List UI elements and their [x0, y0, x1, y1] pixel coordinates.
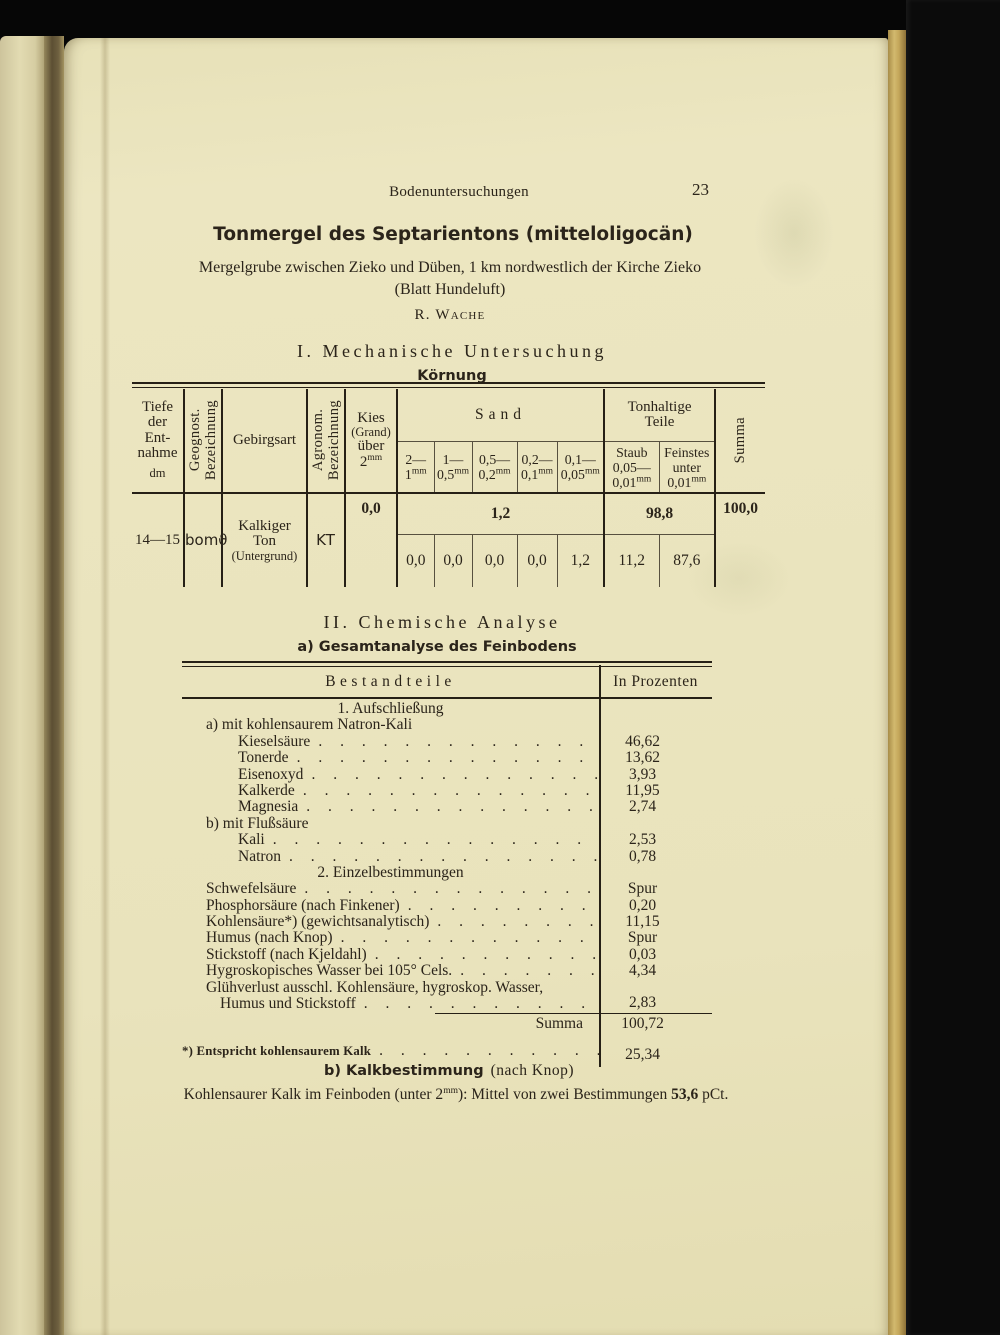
chem-row: Tonerde. . . . . . . . . . . . . . . . .… [182, 750, 712, 766]
dot-leader: . . . . . . . . . . . . . . . . . . . . … [310, 734, 599, 750]
section1-heading: I. Mechanische Untersuchung [64, 341, 840, 362]
header-line: nahme [132, 446, 183, 462]
vertical-label: Agronom. [311, 400, 326, 480]
chem-row: 2. Einzelbestimmungen [182, 865, 712, 881]
header-line: Tonhaltige [605, 400, 714, 416]
chem-value: Spur [599, 930, 712, 946]
dot-leader: . . . . . . . . . . . . . . . . . . . . … [400, 898, 599, 914]
col-header-tiefe: Tiefe der Ent- nahme dm [132, 389, 184, 493]
column-divider [599, 665, 601, 1067]
chem-row: Hygroskopisches Wasser bei 105° Cels.. .… [182, 963, 712, 979]
col-header-sand-2-1: 2— 1mm [397, 442, 434, 494]
chem-row: Summa100,72 [182, 1014, 712, 1036]
cell-sand-value: 0,0 [434, 535, 472, 588]
vertical-label: Geognost. [188, 400, 203, 480]
chem-label: *) Entspricht kohlensaurem Kalk [182, 1043, 371, 1059]
chem-label: Kieselsäure [238, 734, 310, 750]
page-fore-edge [888, 30, 906, 1335]
chem-row: Stickstoff (nach Kjeldahl). . . . . . . … [182, 947, 712, 963]
subtitle-line1: Mergelgrube zwischen Zieko und Düben, 1 … [64, 259, 836, 277]
section-b-heading: b) Kalkbestimmung(nach Knop) [64, 1062, 834, 1080]
chem-value: 100,72 [599, 1016, 712, 1032]
header-line: Ent- [132, 431, 183, 447]
chem-row: Eisenoxyd. . . . . . . . . . . . . . . .… [182, 767, 712, 783]
book-page: Bodenuntersuchungen 23 Tonmergel des Sep… [64, 38, 888, 1335]
chem-value [599, 816, 712, 832]
col-group-tonhaltige: Tonhaltige Teile [604, 389, 715, 442]
chem-value: Spur [599, 881, 712, 897]
subtitle-line2: (Blatt Hundeluft) [64, 281, 836, 299]
table-row: 14—15 bomϑ Kalkiger Ton (Untergrund) KT … [132, 493, 765, 535]
chem-row: b) mit Flußsäure [182, 816, 712, 832]
dot-leader: . . . . . . . . . . . . . . . . . . . . … [296, 881, 599, 897]
dot-leader: . . . . . . . . . . . . . . . . . . . . … [367, 947, 599, 963]
header-line: der [132, 415, 183, 431]
col-header-gebirgsart: Gebirgsart [222, 389, 307, 493]
chem-label: Eisenoxyd [238, 767, 303, 783]
chem-row: Glühverlust ausschl. Kohlensäure, hygros… [182, 980, 712, 1013]
dot-leader: . . . . . . . . . . . . . . . . . . . . … [303, 767, 599, 783]
col-header-kies: Kies (Grand) über 2mm [345, 389, 397, 493]
section2-heading: II. Chemische Analyse [64, 612, 820, 633]
kalk-text: Kohlensaurer Kalk im Feinboden (unter 2 [184, 1086, 444, 1103]
dot-leader: . . . . . . . . . . . . . . . . . . . . … [452, 963, 599, 979]
cell-sand-total: 1,2 [397, 493, 604, 535]
chem-row: Magnesia. . . . . . . . . . . . . . . . … [182, 799, 712, 815]
header-unit: dm [132, 466, 183, 482]
chem-label: Hygroskopisches Wasser bei 105° Cels. [206, 963, 452, 979]
kalk-result-line: Kohlensaurer Kalk im Feinboden (unter 2m… [64, 1086, 848, 1104]
chem-value: 3,93 [599, 767, 712, 783]
section-b-method: (nach Knop) [491, 1062, 574, 1079]
cell-feinstes-value: 87,6 [659, 535, 715, 588]
dot-leader: . . . . . . . . . . . . . . . . . . . . … [371, 1043, 599, 1059]
col-header-summa: Summa [715, 389, 765, 493]
author-name: R. Wache [64, 307, 836, 324]
chem-value: 11,95 [599, 783, 712, 799]
chem-value [599, 717, 712, 733]
mm-superscript: mm [443, 1086, 458, 1096]
chem-label: Phosphorsäure (nach Finkener) [206, 898, 400, 914]
dot-leader: . . . . . . . . . . . . . . . . . . . . … [333, 930, 599, 946]
chem-row: Schwefelsäure. . . . . . . . . . . . . .… [182, 881, 712, 897]
cell-kies-value: 0,0 [345, 493, 397, 587]
col-header-sand-01-005: 0,1— 0,05mm [557, 442, 604, 494]
cell-staub-value: 11,2 [604, 535, 659, 588]
dot-leader: . . . . . . . . . . . . . . . . . . . . … [429, 914, 599, 930]
chem-row: Humus (nach Knop). . . . . . . . . . . .… [182, 930, 712, 946]
page-number: 23 [692, 180, 709, 200]
col-header-sand-02-01: 0,2— 0,1mm [517, 442, 557, 494]
dot-leader: . . . . . . . . . . . . . . . . . . . . … [265, 832, 599, 848]
summa-label: Summa [536, 1016, 583, 1032]
grain-size-table: Tiefe der Ent- nahme dm Geognost. Bezeic… [132, 382, 765, 587]
chem-value: 0,03 [599, 947, 712, 963]
chem-label: Kohlensäure*) (gewichtsanalytisch) [206, 914, 429, 930]
vertical-label: Bezeichnung [204, 400, 219, 480]
cell-tiefe: 14—15 [132, 493, 184, 587]
chem-label: Natron [238, 849, 281, 865]
section2-subheading: a) Gesamtanalyse des Feinbodens [64, 639, 810, 655]
chem-label: Tonerde [238, 750, 289, 766]
cell-agronom: KT [307, 493, 345, 587]
table-top-rule [132, 382, 765, 388]
chem-value: 13,62 [599, 750, 712, 766]
dot-leader: . . . . . . . . . . . . . . . . . . . . … [289, 750, 599, 766]
page-title: Tonmergel des Septarientons (mitteloligo… [64, 224, 842, 245]
chem-header-row: Bestandteile In Prozenten [182, 667, 712, 699]
vertical-label: Bezeichnung [327, 400, 342, 480]
book-cover [906, 0, 1000, 1335]
chem-label: Kalkerde [238, 783, 295, 799]
chem-label: Magnesia [238, 799, 298, 815]
col-group-sand: Sand [397, 389, 604, 442]
col-header-staub: Staub 0,05— 0,01mm [604, 442, 659, 494]
chem-row: 1. Aufschließung [182, 701, 712, 717]
chem-col1-header: Bestandteile [182, 673, 599, 691]
col-header-sand-1-05: 1— 0,5mm [434, 442, 472, 494]
chem-value: 0,78 [599, 849, 712, 865]
header-line: Tiefe [132, 400, 183, 416]
chem-value: 4,34 [599, 963, 712, 979]
col-header-agronom: Agronom. Bezeichnung [307, 389, 345, 493]
kalk-text: ): Mittel von zwei Bestimmungen [458, 1086, 671, 1103]
chem-row: Kieselsäure. . . . . . . . . . . . . . .… [182, 734, 712, 750]
chem-value [599, 865, 712, 881]
chem-value: 46,62 [599, 734, 712, 750]
chem-row: Phosphorsäure (nach Finkener). . . . . .… [182, 898, 712, 914]
chem-value: 2,74 [599, 799, 712, 815]
section-b-title: b) Kalkbestimmung [324, 1063, 484, 1079]
running-head: Bodenuntersuchungen [64, 184, 854, 201]
cell-sand-value: 1,2 [557, 535, 604, 588]
col-header-feinstes: Feinstes unter 0,01mm [659, 442, 715, 494]
vertical-label: Summa [733, 417, 748, 463]
chem-row: a) mit kohlensaurem Natron-Kali [182, 717, 712, 733]
header-line: Kies [346, 411, 396, 427]
chem-row: Natron. . . . . . . . . . . . . . . . . … [182, 849, 712, 865]
chem-value: 2,83 [599, 980, 712, 1013]
chem-value: 11,15 [599, 914, 712, 930]
dot-leader: . . . . . . . . . . . . . . . . . . . . … [295, 783, 599, 799]
kalk-value: 53,6 [671, 1086, 698, 1103]
chem-rows: 1. Aufschließunga) mit kohlensaurem Natr… [182, 699, 712, 1069]
dot-leader: . . . . . . . . . . . . . . . . . . . . … [281, 849, 599, 865]
kalk-unit: pCt. [698, 1086, 728, 1103]
chem-row: Kalkerde. . . . . . . . . . . . . . . . … [182, 783, 712, 799]
chem-label: Humus (nach Knop) [206, 930, 333, 946]
book-scan: Bodenuntersuchungen 23 Tonmergel des Sep… [0, 0, 1000, 1335]
chem-label: Kali [238, 832, 265, 848]
chem-label: Stickstoff (nach Kjeldahl) [206, 947, 367, 963]
chem-value [599, 701, 712, 717]
chem-row: Kohlensäure*) (gewichtsanalytisch). . . … [182, 914, 712, 930]
cell-sand-value: 0,0 [397, 535, 434, 588]
cell-geognost: bomϑ [184, 493, 222, 587]
dot-leader: . . . . . . . . . . . . . . . . . . . . … [298, 799, 599, 815]
chem-row: Kali. . . . . . . . . . . . . . . . . . … [182, 832, 712, 848]
cell-sand-value: 0,0 [517, 535, 557, 588]
book-gutter [44, 36, 64, 1335]
cell-ton-total: 98,8 [604, 493, 715, 535]
cell-sand-value: 0,0 [472, 535, 517, 588]
cell-summa-value: 100,0 [715, 493, 765, 587]
facing-page-edge [0, 36, 44, 1335]
header-line: Teile [605, 415, 714, 431]
chem-col2-header: In Prozenten [599, 673, 712, 691]
col-header-geognost: Geognost. Bezeichnung [184, 389, 222, 493]
chemical-table: Bestandteile In Prozenten 1. Aufschließu… [182, 661, 712, 1069]
col-header-sand-05-02: 0,5— 0,2mm [472, 442, 517, 494]
dot-leader: . . . . . . . . . . . . . . . . . . . . … [356, 996, 599, 1012]
cell-gebirgsart: Kalkiger Ton (Untergrund) [222, 493, 307, 587]
header-limit: 2mm [346, 455, 396, 471]
chem-value: 2,53 [599, 832, 712, 848]
chem-value: 0,20 [599, 898, 712, 914]
chem-label: Schwefelsäure [206, 881, 296, 897]
